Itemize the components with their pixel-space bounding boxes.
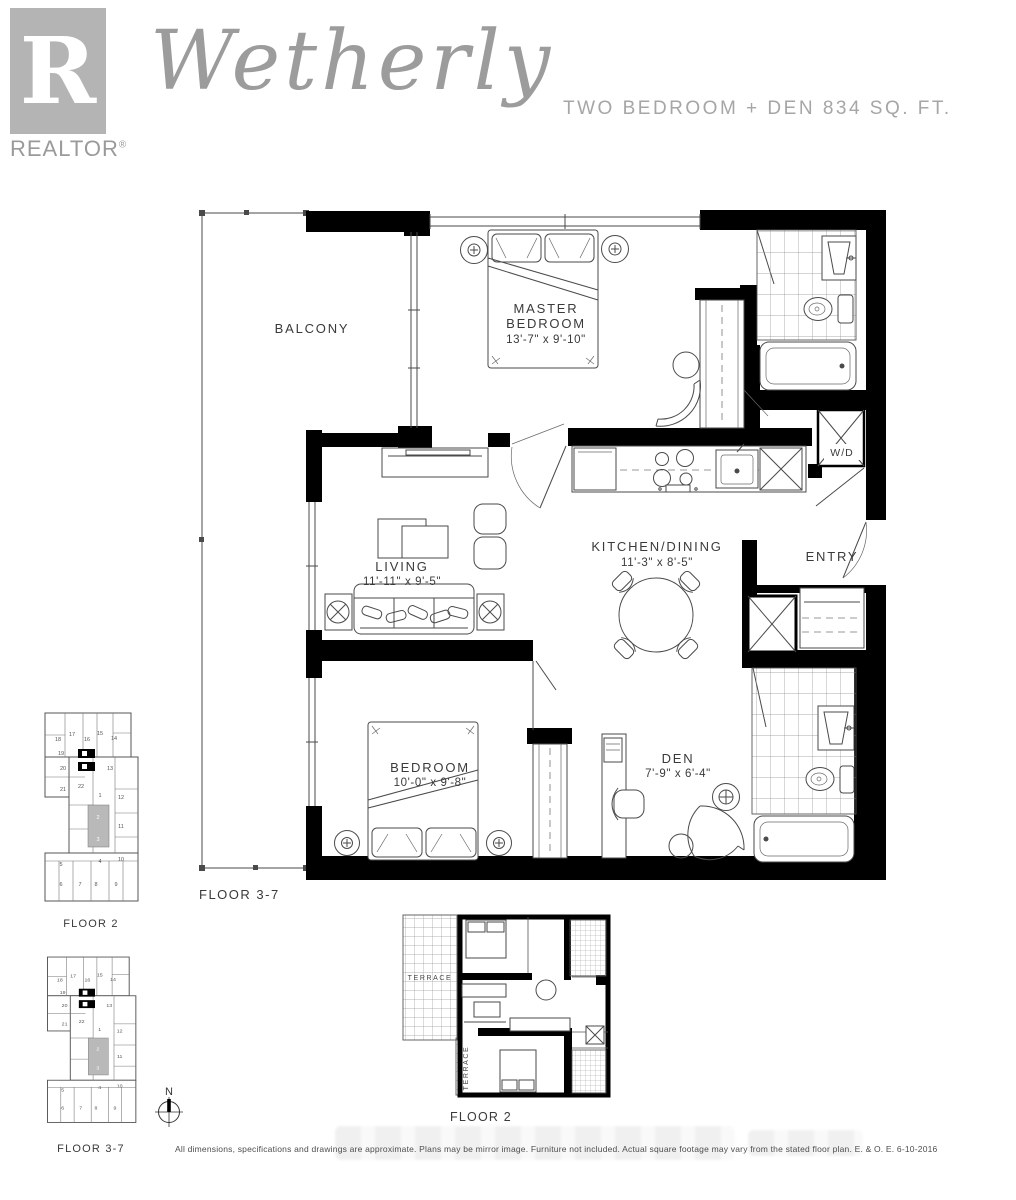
living-furniture — [325, 448, 506, 634]
bathtub-icon — [754, 816, 854, 862]
kitchen-counter — [572, 444, 806, 492]
sink-icon — [822, 236, 856, 280]
desk-chair-icon — [612, 788, 644, 820]
bathtub-icon — [760, 342, 856, 390]
wd-label: W/D — [830, 447, 853, 459]
compass-n-label: N — [165, 1086, 173, 1098]
key-plan-unit-number: 18 — [55, 737, 61, 743]
key-plan-unit-number: 15 — [97, 973, 103, 979]
bedroom-closet — [533, 744, 567, 858]
key-plan-unit-number: 13 — [106, 1003, 112, 1009]
key-plan-unit-number: 3 — [96, 837, 99, 843]
key-plan-unit-number: 8 — [94, 882, 97, 888]
key-plan-unit-number: 21 — [62, 1022, 68, 1028]
key-plan-unit-number: 8 — [94, 1105, 97, 1111]
terrace-side-label: TERRACE — [463, 1046, 470, 1091]
mini-plan-floor-label: FLOOR 2 — [450, 1110, 512, 1124]
key-plan-unit-number: 6 — [61, 1105, 64, 1111]
key-plan-unit-number: 12 — [117, 1029, 123, 1035]
key-plan-unit-number: 9 — [113, 1105, 116, 1111]
sofa-icon — [354, 584, 474, 634]
bedroom-dims: 10'-0" x 9'-8" — [394, 777, 467, 789]
key-plan-floor2-label: FLOOR 2 — [63, 918, 118, 930]
bathroom-upper — [757, 230, 856, 390]
bedroom-label: BEDROOM — [390, 760, 470, 775]
balcony-railing — [199, 210, 309, 871]
key-plan-unit-number: 7 — [78, 882, 81, 888]
master-bedroom-label1: MASTER — [514, 301, 579, 316]
tv-console-icon — [382, 448, 488, 477]
master-closet — [700, 300, 744, 428]
key-plan-unit-number: 2 — [96, 815, 99, 821]
north-compass-icon: N — [155, 1086, 183, 1127]
bed-icon — [488, 230, 598, 368]
den-dims: 7'-9" x 6'-4" — [645, 768, 711, 780]
dining-set — [611, 570, 702, 661]
key-plan-unit-number: 22 — [78, 784, 84, 790]
kitchen-label: KITCHEN/DINING — [591, 539, 722, 554]
disclaimer-text: All dimensions, specifications and drawi… — [175, 1144, 875, 1154]
key-plan-unit-number: 20 — [60, 766, 66, 772]
key-plan-unit-number: 11 — [117, 1054, 123, 1060]
key-plan-unit-number: 19 — [58, 751, 64, 757]
key-plan-unit-number: 15 — [97, 731, 103, 737]
key-plan-unit-number: 4 — [98, 1085, 101, 1091]
key-plan-unit-number: 7 — [79, 1105, 82, 1111]
key-plan-unit-number: 10 — [118, 857, 124, 863]
floorplan-canvas: W/D — [0, 0, 1016, 1200]
key-plan-unit-number: 17 — [70, 973, 76, 979]
master-bedroom-dims: 13'-7" x 9'-10" — [506, 334, 586, 346]
kitchen-sink-icon — [716, 444, 758, 488]
key-plan-unit-number: 19 — [60, 990, 66, 996]
sink-icon — [818, 706, 854, 750]
master-bedroom-label2: BEDROOM — [506, 316, 586, 331]
mini-floorplan: TERRACE TERRACE — [403, 915, 608, 1095]
key-plan-unit-number: 13 — [107, 766, 113, 772]
key-plan-floor37-label: FLOOR 3-7 — [57, 1143, 125, 1155]
key-plan-floor37: 18171615141920212213112211341056789 — [48, 957, 136, 1122]
key-plan-unit-number: 2 — [96, 1046, 99, 1052]
key-plan-unit-number: 9 — [114, 882, 117, 888]
entry-label: ENTRY — [806, 549, 859, 564]
pantry-icon — [760, 448, 802, 490]
key-plan-unit-number: 1 — [98, 1027, 101, 1033]
key-plan-unit-number: 6 — [59, 882, 62, 888]
key-plan-unit-number: 5 — [61, 1088, 64, 1094]
living-label: LIVING — [375, 559, 428, 574]
watermark — [335, 1126, 735, 1160]
lounge-chair-icon — [669, 806, 744, 860]
key-plan-unit-number: 17 — [69, 732, 75, 738]
lounge-chair-icon — [656, 352, 700, 426]
key-plan-unit-number: 4 — [98, 859, 101, 865]
side-table-plant-icon — [713, 784, 740, 811]
key-plan-unit-number: 18 — [57, 978, 63, 984]
key-plan-unit-number: 1 — [98, 793, 101, 799]
bathroom-lower — [752, 668, 856, 862]
den-label: DEN — [662, 751, 695, 766]
key-plan-unit-number: 12 — [118, 795, 124, 801]
kitchen-dims: 11'-3" x 8'-5" — [621, 557, 693, 569]
key-plan-unit-number: 3 — [96, 1066, 99, 1072]
key-plan-unit-number: 10 — [117, 1083, 123, 1089]
key-plan-unit-number: 11 — [118, 824, 124, 830]
key-plan-unit-number: 16 — [84, 737, 90, 743]
main-floor-label: FLOOR 3-7 — [199, 887, 280, 902]
terrace-top-label: TERRACE — [408, 975, 453, 982]
key-plan-unit-number: 20 — [62, 1003, 68, 1009]
key-plan-floor2: 18171615141920212213112211341056789 — [45, 713, 138, 901]
floorplan-page: R REALTOR® Wetherly TWO BEDROOM + DEN 83… — [0, 0, 1016, 1200]
washer-dryer-closet: W/D — [818, 410, 864, 466]
main-floorplan: W/D — [199, 210, 886, 902]
key-plan-unit-number: 14 — [111, 736, 117, 742]
entry-closets — [748, 588, 864, 652]
living-dims: 11'-11" x 9'-5" — [363, 576, 441, 588]
key-plan-unit-number: 5 — [59, 862, 62, 868]
balcony-label: BALCONY — [275, 321, 350, 336]
key-plan-unit-number: 16 — [84, 978, 90, 984]
bed-icon — [368, 722, 478, 860]
key-plan-unit-number: 14 — [110, 977, 116, 983]
key-plan-unit-number: 21 — [60, 787, 66, 793]
key-plan-unit-number: 22 — [79, 1019, 85, 1025]
